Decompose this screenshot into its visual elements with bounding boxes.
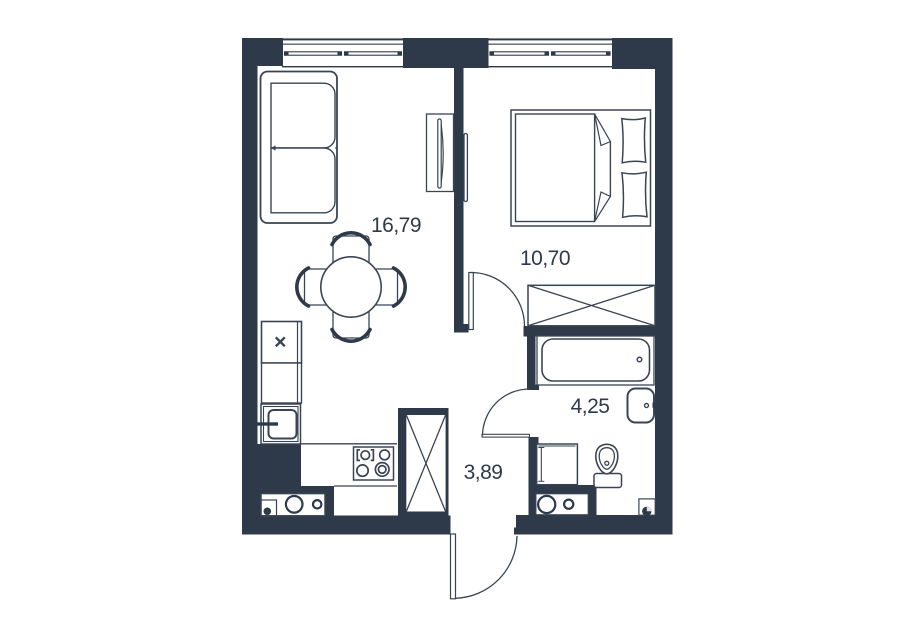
svg-text:4,25: 4,25 [571,395,610,418]
svg-text:3,89: 3,89 [464,461,503,484]
svg-text:16,79: 16,79 [371,214,421,237]
svg-text:10,70: 10,70 [520,247,570,270]
